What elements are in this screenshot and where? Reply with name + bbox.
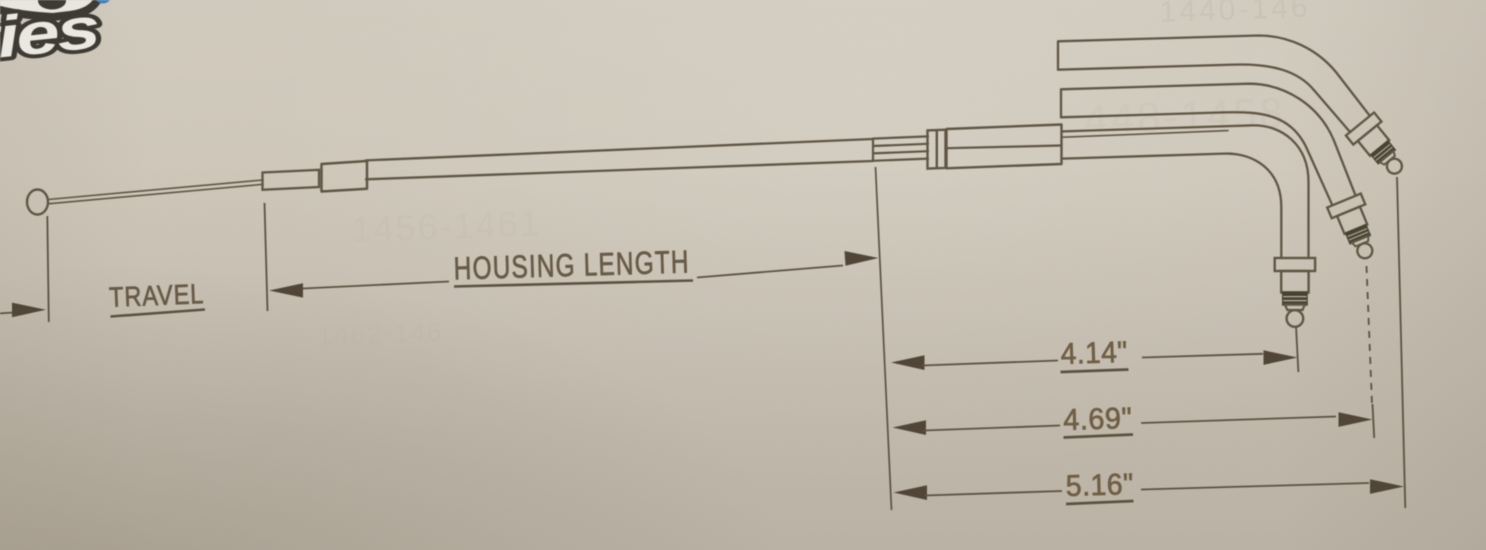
svg-text:1456-1461: 1456-1461 <box>351 202 542 250</box>
svg-text:4.69": 4.69" <box>1063 402 1133 437</box>
svg-text:1462-146: 1462-146 <box>317 317 444 351</box>
svg-text:1440-146: 1440-146 <box>1159 0 1311 29</box>
svg-text:HOUSING LENGTH: HOUSING LENGTH <box>453 244 690 287</box>
svg-text:4.14": 4.14" <box>1060 336 1128 371</box>
svg-text:ties: ties <box>0 0 102 73</box>
svg-text:5.16": 5.16" <box>1065 468 1134 503</box>
svg-text:TRAVEL: TRAVEL <box>109 278 205 313</box>
